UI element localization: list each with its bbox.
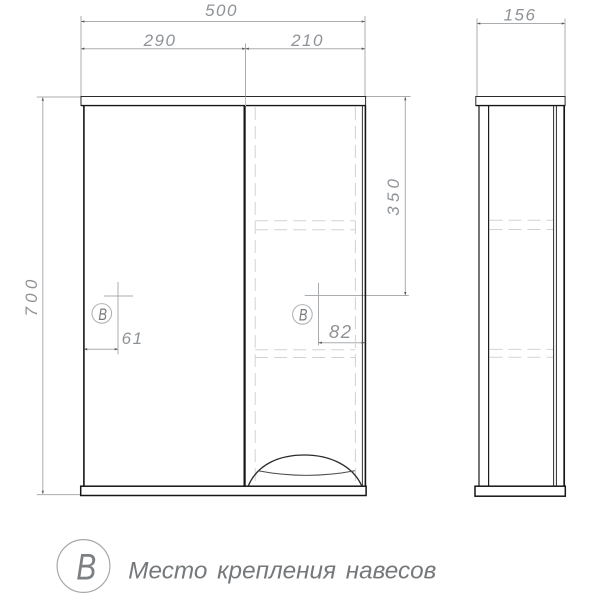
svg-text:210: 210 [290, 31, 324, 50]
svg-text:500: 500 [205, 1, 238, 20]
svg-text:350: 350 [384, 175, 403, 216]
svg-text:290: 290 [143, 31, 177, 50]
svg-text:156: 156 [504, 5, 537, 24]
svg-text:700: 700 [22, 276, 41, 317]
svg-text:Место крепления навесов: Место крепления навесов [128, 557, 436, 584]
svg-text:82: 82 [329, 321, 353, 342]
svg-text:61: 61 [122, 329, 144, 348]
svg-text:В: В [98, 306, 107, 324]
svg-text:В: В [76, 546, 96, 588]
svg-text:В: В [299, 307, 308, 325]
